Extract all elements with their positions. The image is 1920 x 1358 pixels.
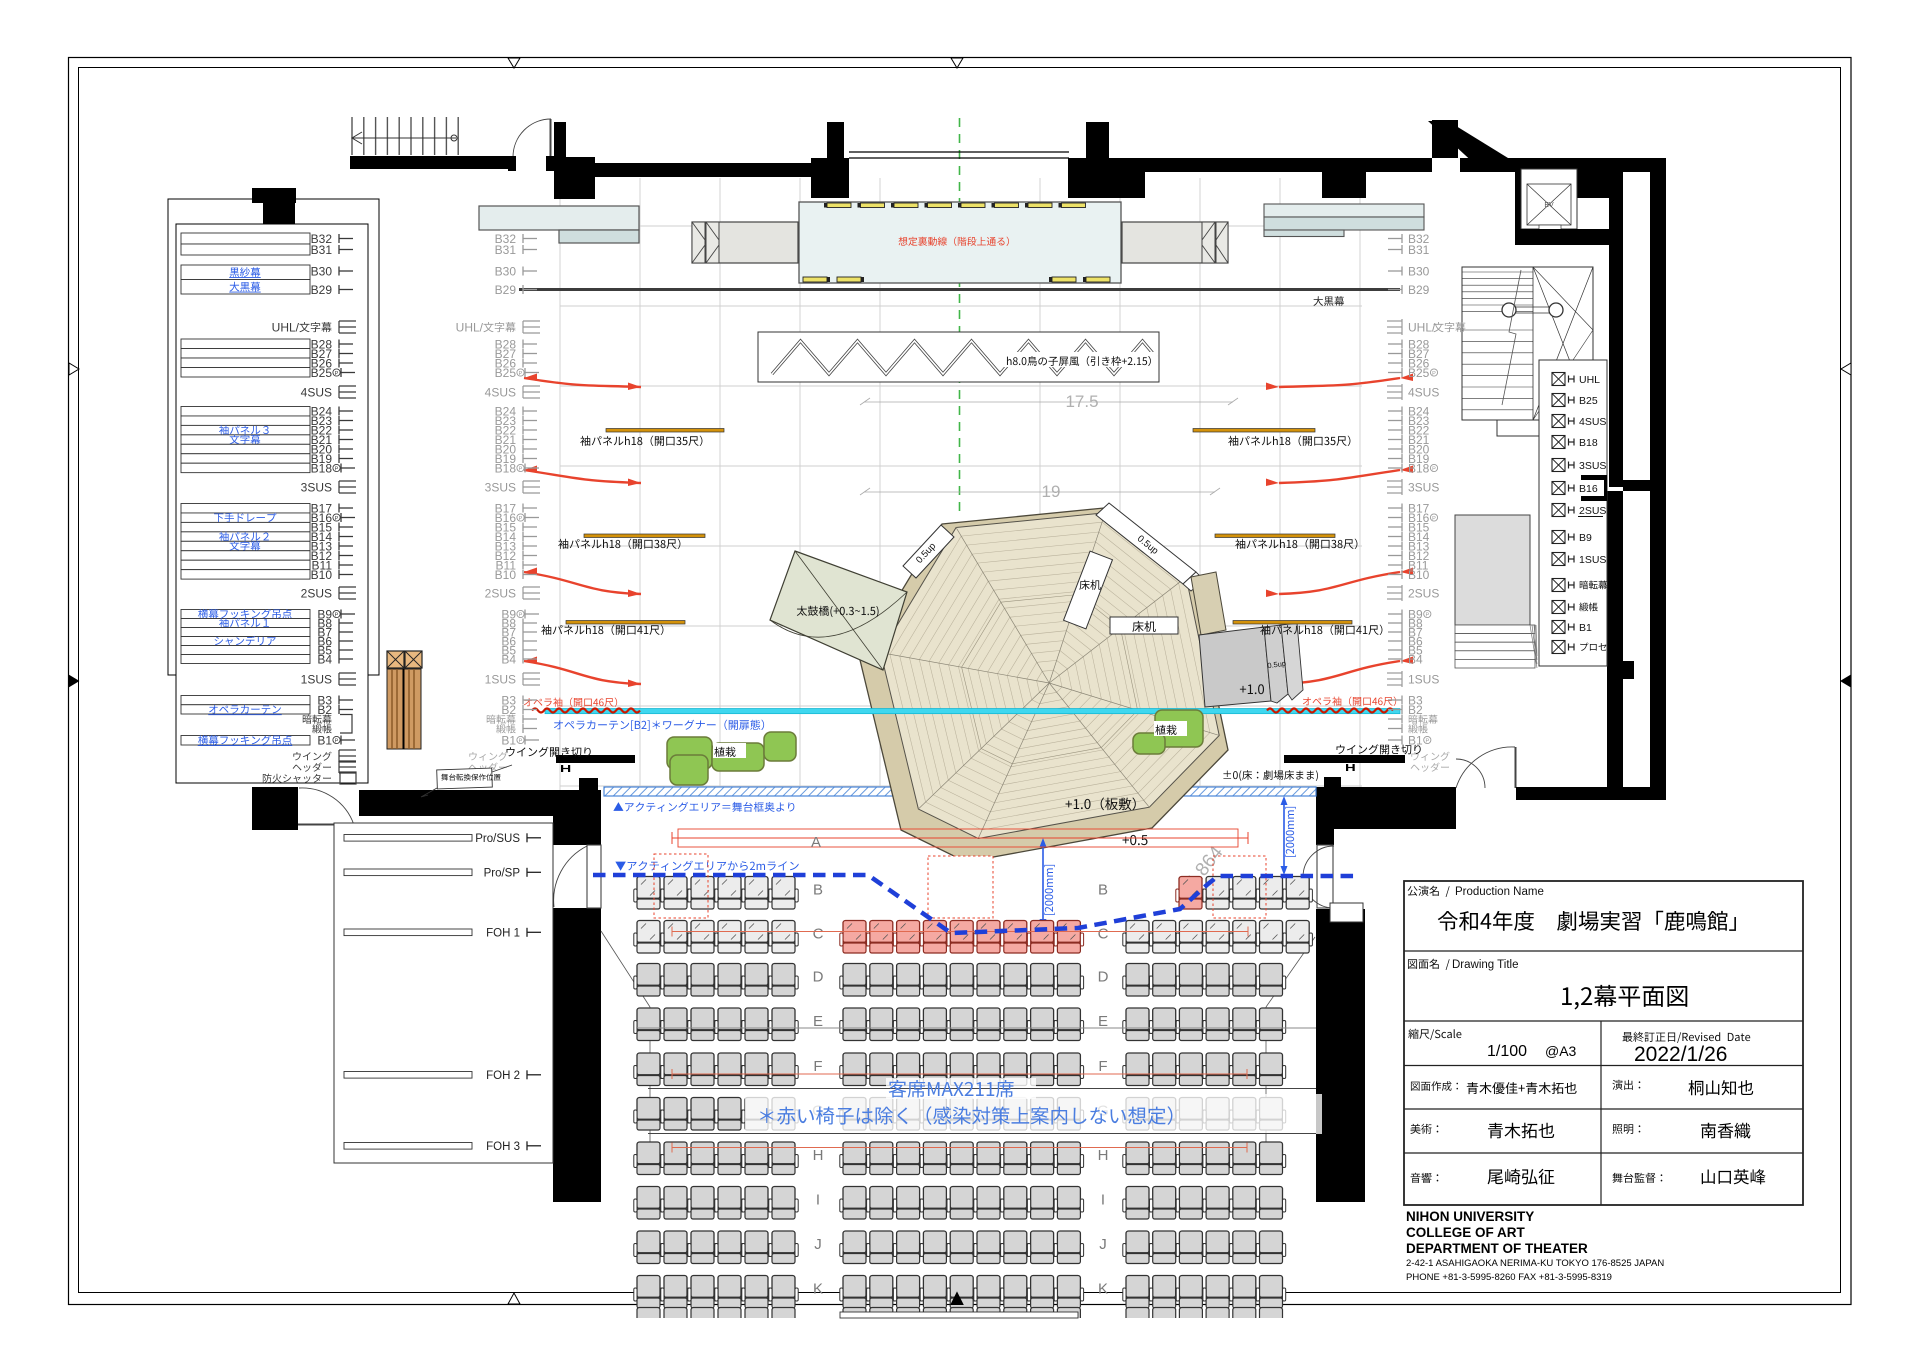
svg-text:B31: B31 <box>311 243 333 257</box>
svg-text:J: J <box>1099 1236 1107 1253</box>
svg-text:3SUS: 3SUS <box>1579 460 1606 472</box>
svg-text:2SUS: 2SUS <box>1408 586 1439 600</box>
svg-text:1SUS: 1SUS <box>485 672 516 686</box>
svg-text:B25: B25 <box>311 366 333 380</box>
svg-text:K: K <box>1098 1281 1108 1298</box>
svg-text:B18: B18 <box>1408 461 1430 475</box>
svg-text:Pro/SP: Pro/SP <box>484 867 521 879</box>
svg-text:B10: B10 <box>495 568 517 582</box>
svg-text:P: P <box>1425 613 1429 619</box>
svg-text:P: P <box>335 516 339 522</box>
svg-text:Pro/SUS: Pro/SUS <box>475 833 520 845</box>
svg-text:B: B <box>1098 882 1108 899</box>
svg-text:P: P <box>335 467 339 473</box>
svg-text:1/100: 1/100 <box>1487 1043 1527 1060</box>
svg-text:B10: B10 <box>1408 568 1430 582</box>
svg-text:B18: B18 <box>311 461 333 475</box>
svg-text:D: D <box>813 969 824 986</box>
svg-text:B25: B25 <box>1408 366 1430 380</box>
svg-text:P: P <box>519 739 523 745</box>
svg-text:B29: B29 <box>311 283 333 297</box>
svg-text:P: P <box>519 467 523 473</box>
svg-text:H: H <box>1098 1147 1109 1164</box>
svg-text:Production Name: Production Name <box>1455 886 1544 898</box>
svg-text:B30: B30 <box>311 264 333 278</box>
svg-text:1SUS: 1SUS <box>1579 554 1606 566</box>
svg-text:UHL/: UHL/ <box>456 320 484 334</box>
svg-text:D: D <box>1098 969 1109 986</box>
svg-text:J: J <box>814 1236 822 1253</box>
svg-text:2-42-1 ASAHIGAOKA NERIMA-KU: 2-42-1 ASAHIGAOKA NERIMA-KU TOKYO 176-85… <box>1406 1258 1664 1269</box>
svg-text:B1: B1 <box>317 733 332 747</box>
svg-text:B10: B10 <box>311 568 333 582</box>
svg-text:I: I <box>1101 1192 1105 1209</box>
svg-text:E: E <box>1098 1013 1108 1030</box>
svg-text:Drawing Title: Drawing Title <box>1452 959 1518 971</box>
svg-text:P: P <box>1432 371 1436 377</box>
svg-text:B25: B25 <box>1579 395 1598 407</box>
svg-text:4SUS: 4SUS <box>485 385 516 399</box>
svg-text:UHL/: UHL/ <box>1408 320 1436 334</box>
svg-text:3SUS: 3SUS <box>1408 480 1439 494</box>
svg-text:19: 19 <box>1042 482 1061 501</box>
svg-text:P: P <box>335 371 339 377</box>
svg-text:@A3: @A3 <box>1545 1043 1577 1059</box>
svg-text:EV: EV <box>1544 202 1554 209</box>
svg-text:17.5: 17.5 <box>1065 392 1098 411</box>
svg-text:FOH 1: FOH 1 <box>486 927 520 939</box>
svg-text:A: A <box>811 834 821 851</box>
svg-text:B1: B1 <box>1579 622 1592 634</box>
svg-text:B18: B18 <box>1579 437 1598 449</box>
svg-text:B2: B2 <box>501 703 516 717</box>
svg-text:B4: B4 <box>1408 652 1423 666</box>
svg-text:FOH 3: FOH 3 <box>486 1141 520 1153</box>
svg-text:2022/1/26: 2022/1/26 <box>1634 1043 1727 1066</box>
svg-text:B1: B1 <box>501 733 516 747</box>
svg-text:P: P <box>335 739 339 745</box>
svg-text:B: B <box>813 882 823 899</box>
svg-text:H: H <box>813 1147 824 1164</box>
svg-text:B29: B29 <box>495 283 517 297</box>
svg-text:FOH 2: FOH 2 <box>486 1070 520 1082</box>
svg-text:B9: B9 <box>1579 532 1592 544</box>
svg-text:E: E <box>813 1013 823 1030</box>
svg-text:C: C <box>813 926 824 943</box>
svg-text:P: P <box>519 613 523 619</box>
svg-text:4SUS: 4SUS <box>1408 385 1439 399</box>
svg-text:2SUS: 2SUS <box>1579 505 1606 517</box>
svg-text:F: F <box>813 1058 822 1075</box>
svg-text:UHL: UHL <box>1579 374 1600 386</box>
svg-text:B30: B30 <box>495 264 517 278</box>
svg-text:UHL/: UHL/ <box>272 320 300 334</box>
svg-text:B29: B29 <box>1408 283 1430 297</box>
svg-text:3SUS: 3SUS <box>485 480 516 494</box>
svg-text:DEPARTMENT OF THEATER: DEPARTMENT OF THEATER <box>1406 1241 1588 1256</box>
svg-text:B4: B4 <box>317 652 332 666</box>
svg-text:B25: B25 <box>495 366 517 380</box>
svg-text:I: I <box>816 1192 820 1209</box>
svg-text:P: P <box>519 516 523 522</box>
svg-text:4SUS: 4SUS <box>1579 416 1606 428</box>
svg-text:P: P <box>1432 516 1436 522</box>
svg-text:P: P <box>1425 739 1429 745</box>
svg-text:K: K <box>813 1281 823 1298</box>
svg-text:B4: B4 <box>501 652 516 666</box>
svg-text:3SUS: 3SUS <box>301 480 332 494</box>
svg-text:NIHON UNIVERSITY: NIHON UNIVERSITY <box>1406 1209 1534 1224</box>
svg-text:1SUS: 1SUS <box>301 672 332 686</box>
svg-text:C: C <box>1098 926 1109 943</box>
svg-text:2SUS: 2SUS <box>485 586 516 600</box>
svg-text:B31: B31 <box>495 243 517 257</box>
svg-text:B16: B16 <box>1579 483 1598 495</box>
svg-text:F: F <box>1098 1058 1107 1075</box>
svg-text:4SUS: 4SUS <box>301 385 332 399</box>
svg-text:B31: B31 <box>1408 243 1430 257</box>
svg-text:B30: B30 <box>1408 264 1430 278</box>
svg-text:B18: B18 <box>495 461 517 475</box>
svg-text:2SUS: 2SUS <box>301 586 332 600</box>
svg-text:COLLEGE OF ART: COLLEGE OF ART <box>1406 1225 1525 1240</box>
svg-text:PHONE +81-3-5995-8260 FAX +81: PHONE +81-3-5995-8260 FAX +81-3-5995-831… <box>1406 1272 1612 1283</box>
svg-text:1SUS: 1SUS <box>1408 672 1439 686</box>
svg-text:P: P <box>335 613 339 619</box>
svg-text:P: P <box>1432 467 1436 473</box>
svg-text:B2: B2 <box>317 703 332 717</box>
svg-text:P: P <box>519 371 523 377</box>
